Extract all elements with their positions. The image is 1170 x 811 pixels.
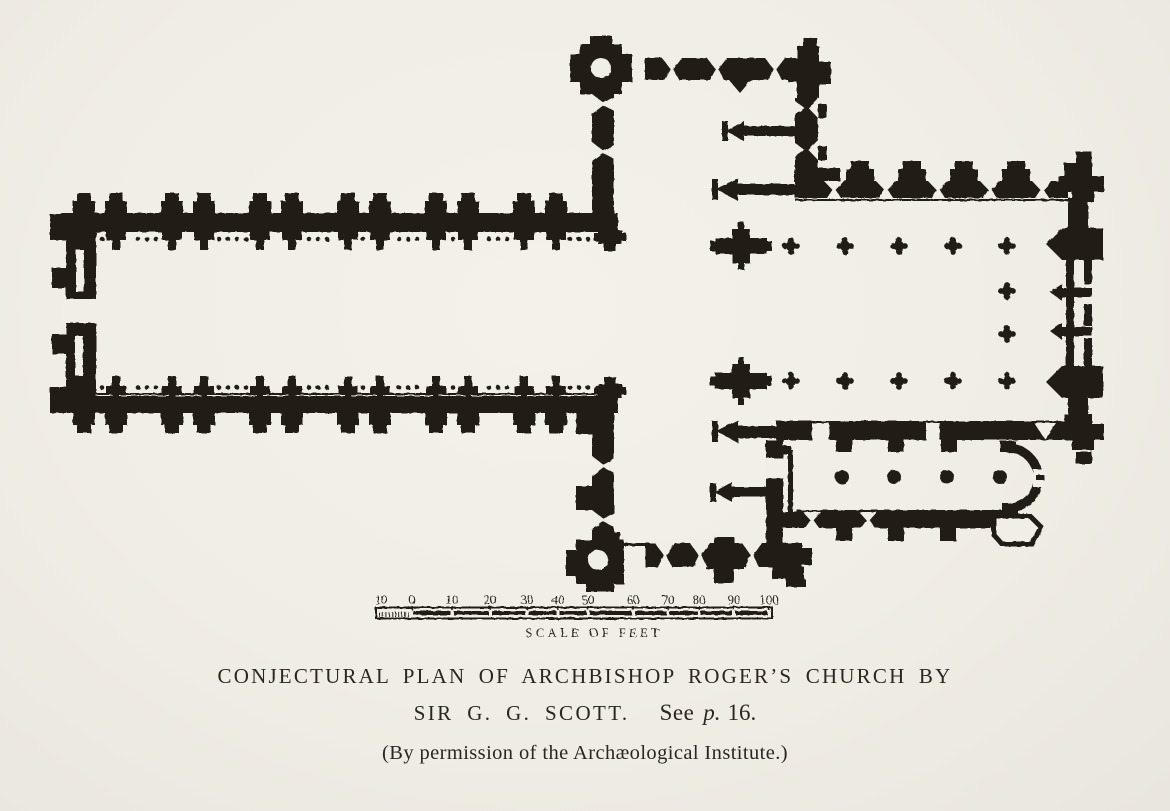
scale-label: 40: [552, 592, 565, 607]
chapel-doorway: [766, 458, 783, 478]
choir-south-doorway: [926, 423, 940, 440]
choir: [712, 152, 1104, 464]
choir-arcade-columns: [782, 237, 1016, 390]
crossing: [594, 222, 772, 405]
east-window-transom: [1062, 327, 1092, 336]
scale-label: 80: [693, 592, 706, 607]
chapel-column: [940, 470, 954, 484]
scale-label: 30: [521, 592, 534, 607]
west-doorway: [62, 299, 100, 323]
crossing-pier-ne: [710, 222, 772, 270]
scale-label: 100: [759, 592, 779, 607]
chapel-column: [887, 470, 901, 484]
chapel-altar: [710, 482, 768, 502]
scale-label: 70: [662, 592, 675, 607]
stair-turret-well: [588, 550, 608, 570]
east-front: [1046, 152, 1104, 464]
chapel-column: [993, 470, 1007, 484]
stair-turret-well: [591, 58, 611, 78]
chapel-se-annex: [994, 516, 1041, 544]
choir-north-buttresses: [794, 161, 1088, 414]
crossing-pier-se: [710, 357, 772, 405]
north-transept-altar: [722, 121, 795, 141]
scale-bar: 10 0 10 20 30 40 50 60 70 80 90 100 SCAL…: [375, 592, 779, 640]
scale-label: 10: [375, 592, 388, 607]
church-plan-figure: 10 0 10 20 30 40 50 60 70 80 90 100 SCAL…: [0, 0, 1170, 811]
choir-south-doorway: [812, 423, 829, 440]
nave: [50, 193, 618, 433]
scale-label: 10: [446, 592, 459, 607]
east-window-transom: [1062, 288, 1092, 297]
scale-label: 50: [582, 592, 595, 607]
south-transept: [566, 396, 812, 592]
chapel-column: [835, 470, 849, 484]
scale-label: 60: [627, 592, 640, 607]
south-chapel: [710, 441, 1045, 544]
book-page: 10 0 10 20 30 40 50 60 70 80 90 100 SCAL…: [0, 0, 1170, 811]
scale-label: 20: [484, 592, 497, 607]
scale-label: 0: [409, 592, 416, 607]
scale-title: SCALE OF FEET: [525, 626, 662, 640]
scale-label: 90: [728, 592, 741, 607]
